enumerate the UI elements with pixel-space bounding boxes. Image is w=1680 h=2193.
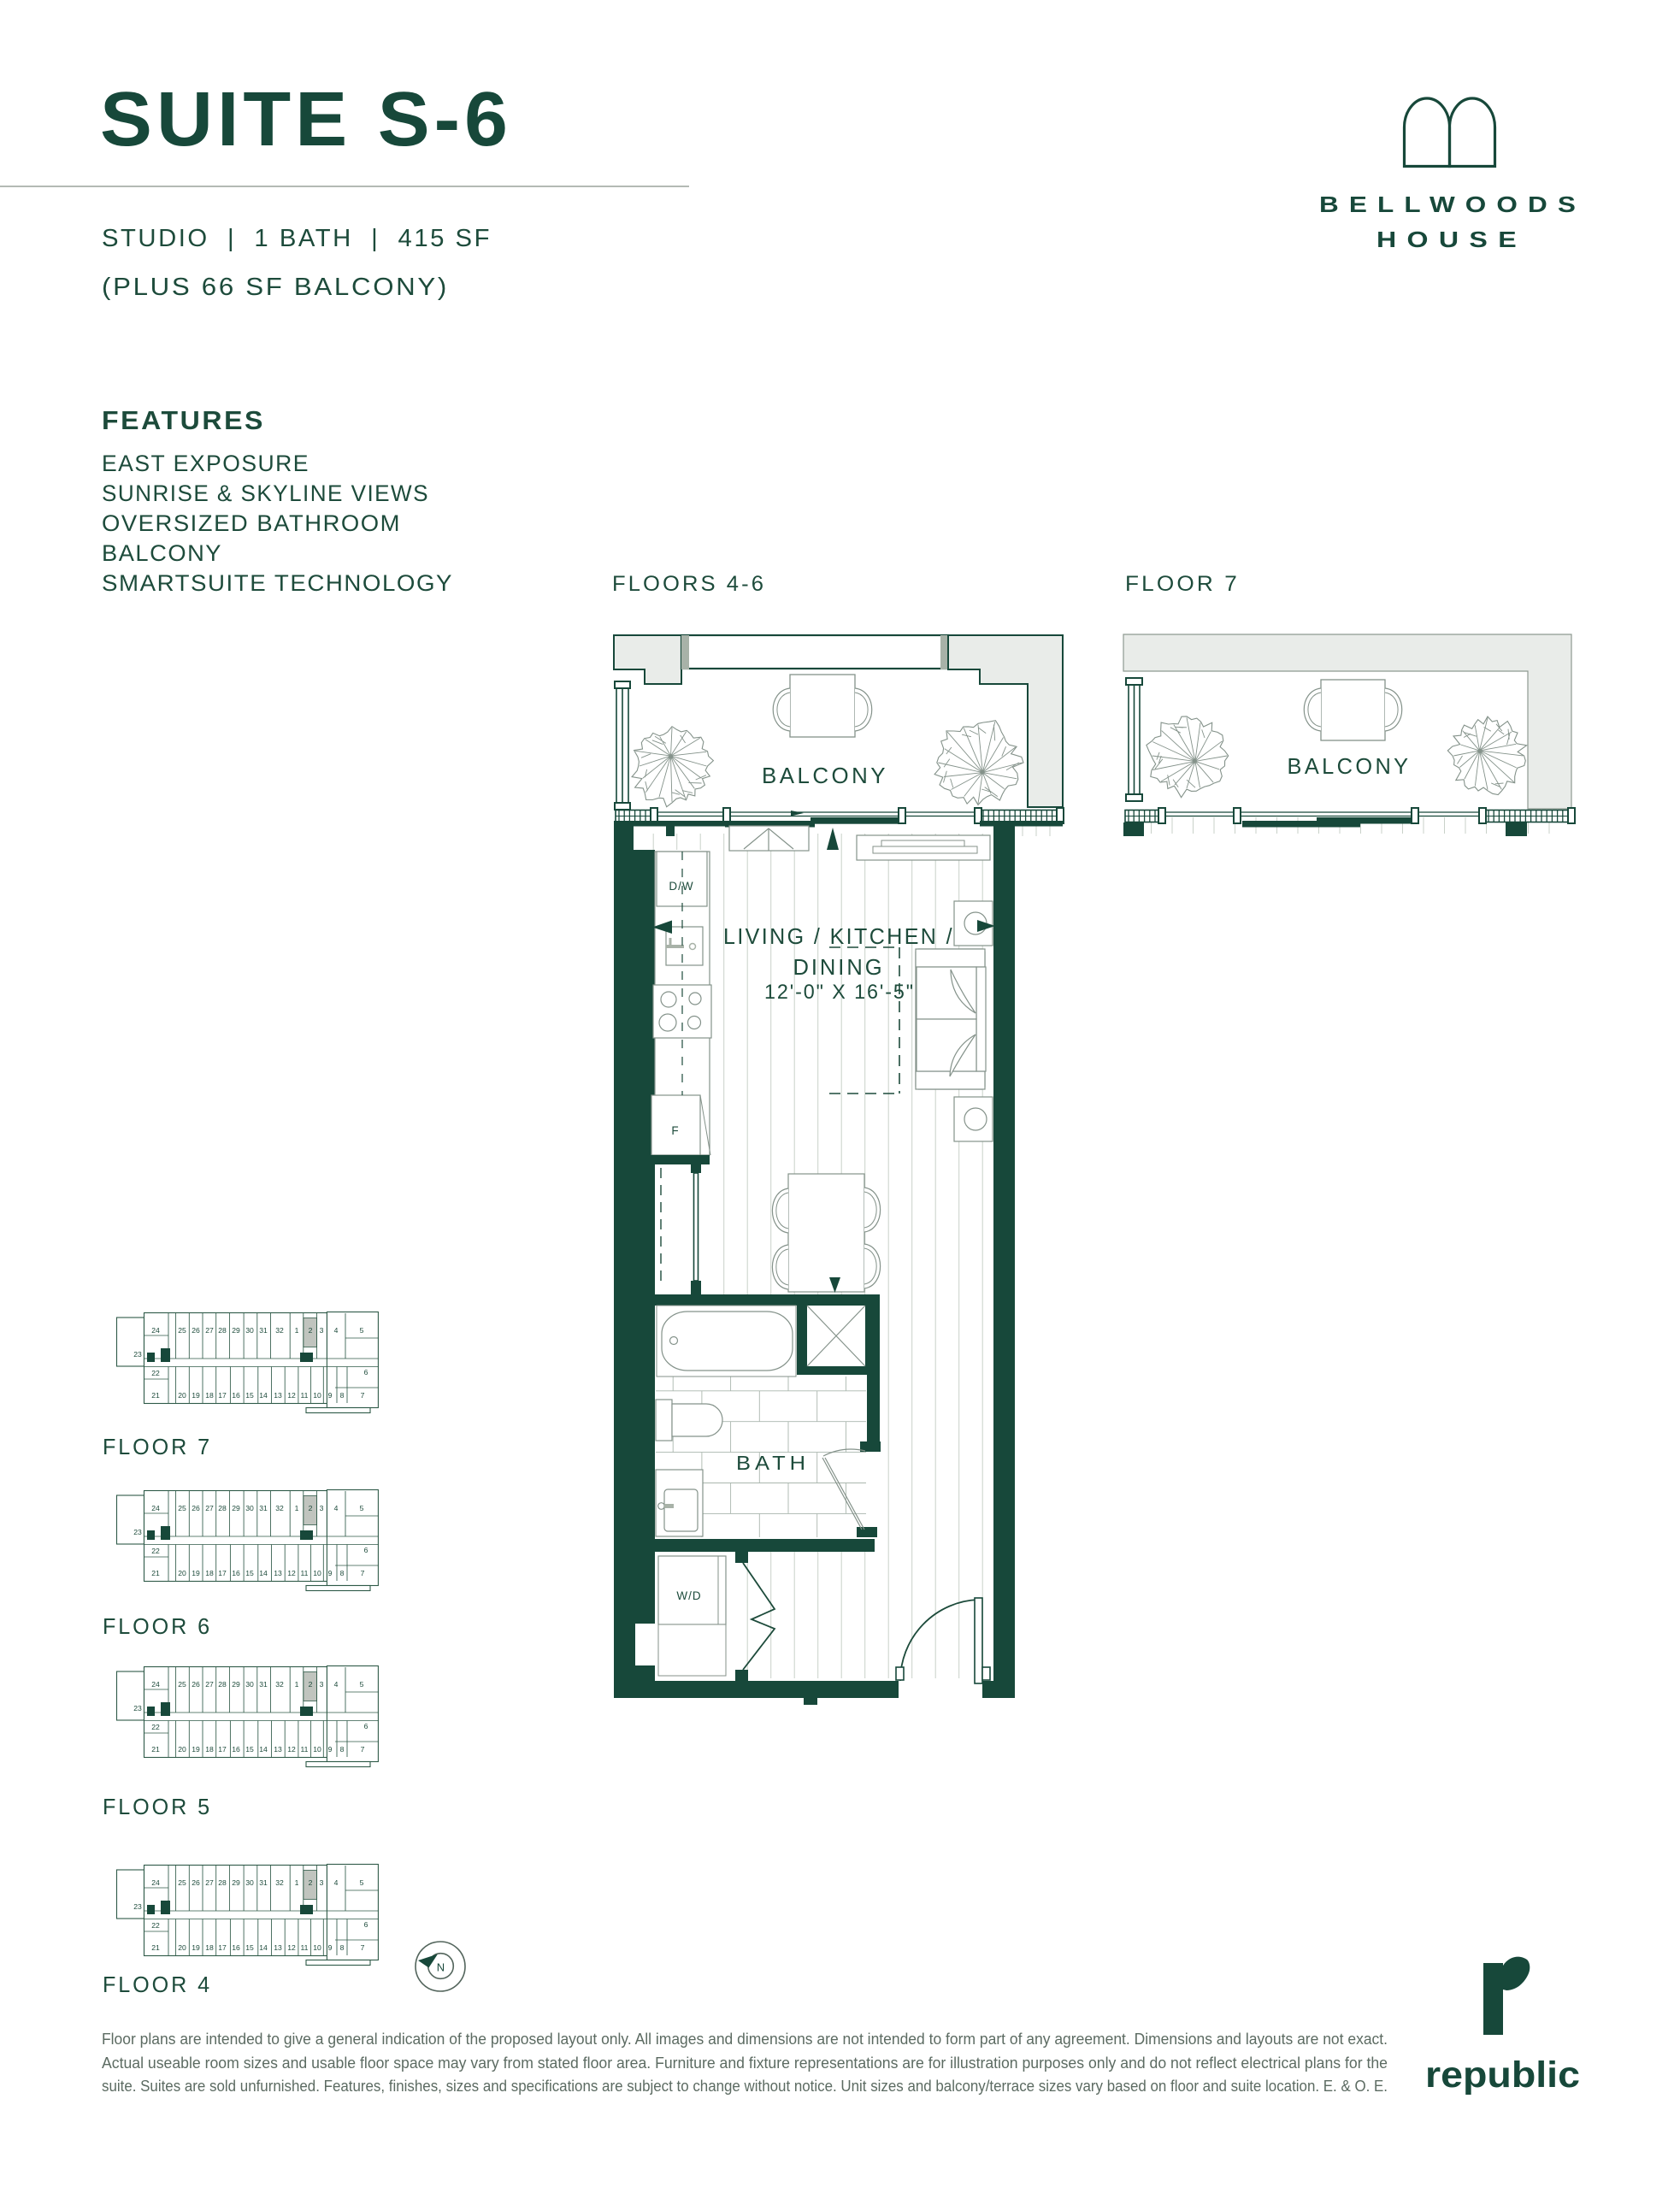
svg-text:(PLUS 66 SF BALCONY): (PLUS 66 SF BALCONY) — [102, 274, 449, 301]
svg-text:F: F — [671, 1124, 679, 1137]
svg-text:OVERSIZED BATHROOM: OVERSIZED BATHROOM — [102, 510, 401, 536]
svg-text:BATH: BATH — [736, 1452, 810, 1474]
svg-text:republic: republic — [1425, 2054, 1580, 2096]
svg-text:SUITE S-6: SUITE S-6 — [100, 77, 512, 162]
svg-text:EAST EXPOSURE: EAST EXPOSURE — [102, 451, 309, 476]
svg-text:LIVING / KITCHEN /: LIVING / KITCHEN / — [723, 923, 954, 949]
svg-text:12'-0" X 16'-5": 12'-0" X 16'-5" — [764, 981, 915, 1004]
svg-text:BALCONY: BALCONY — [102, 540, 222, 566]
svg-text:SUNRISE & SKYLINE VIEWS: SUNRISE & SKYLINE VIEWS — [102, 480, 429, 506]
svg-text:D/W: D/W — [669, 880, 693, 893]
svg-text:FLOOR 7: FLOOR 7 — [103, 1434, 212, 1459]
svg-text:FLOOR 5: FLOOR 5 — [103, 1794, 212, 1819]
svg-text:FLOORS 4-6: FLOORS 4-6 — [612, 572, 766, 596]
svg-text:Actual useable room sizes and: Actual useable room sizes and usable flo… — [102, 2054, 1388, 2072]
svg-text:BELLWOODS: BELLWOODS — [1319, 192, 1586, 217]
svg-text:DINING: DINING — [793, 954, 885, 980]
svg-text:FLOOR 4: FLOOR 4 — [103, 1972, 212, 1997]
svg-text:Floor plans are intended to gi: Floor plans are intended to give a gener… — [102, 2030, 1388, 2048]
svg-text:BALCONY: BALCONY — [1288, 753, 1412, 779]
svg-text:FLOOR 6: FLOOR 6 — [103, 1613, 212, 1639]
svg-text:SMARTSUITE TECHNOLOGY: SMARTSUITE TECHNOLOGY — [102, 570, 453, 596]
svg-text:W/D: W/D — [676, 1589, 701, 1602]
svg-text:FLOOR 7: FLOOR 7 — [1125, 572, 1240, 596]
svg-text:STUDIO | 1 BATH | 415 SF: STUDIO | 1 BATH | 415 SF — [102, 225, 492, 252]
svg-text:suite. Suites are sold unfurni: suite. Suites are sold unfurnished. Feat… — [102, 2077, 1388, 2095]
svg-text:HOUSE: HOUSE — [1376, 227, 1527, 252]
svg-text:N: N — [437, 1961, 445, 1974]
svg-text:BALCONY: BALCONY — [762, 763, 888, 788]
svg-text:FEATURES: FEATURES — [102, 405, 265, 435]
